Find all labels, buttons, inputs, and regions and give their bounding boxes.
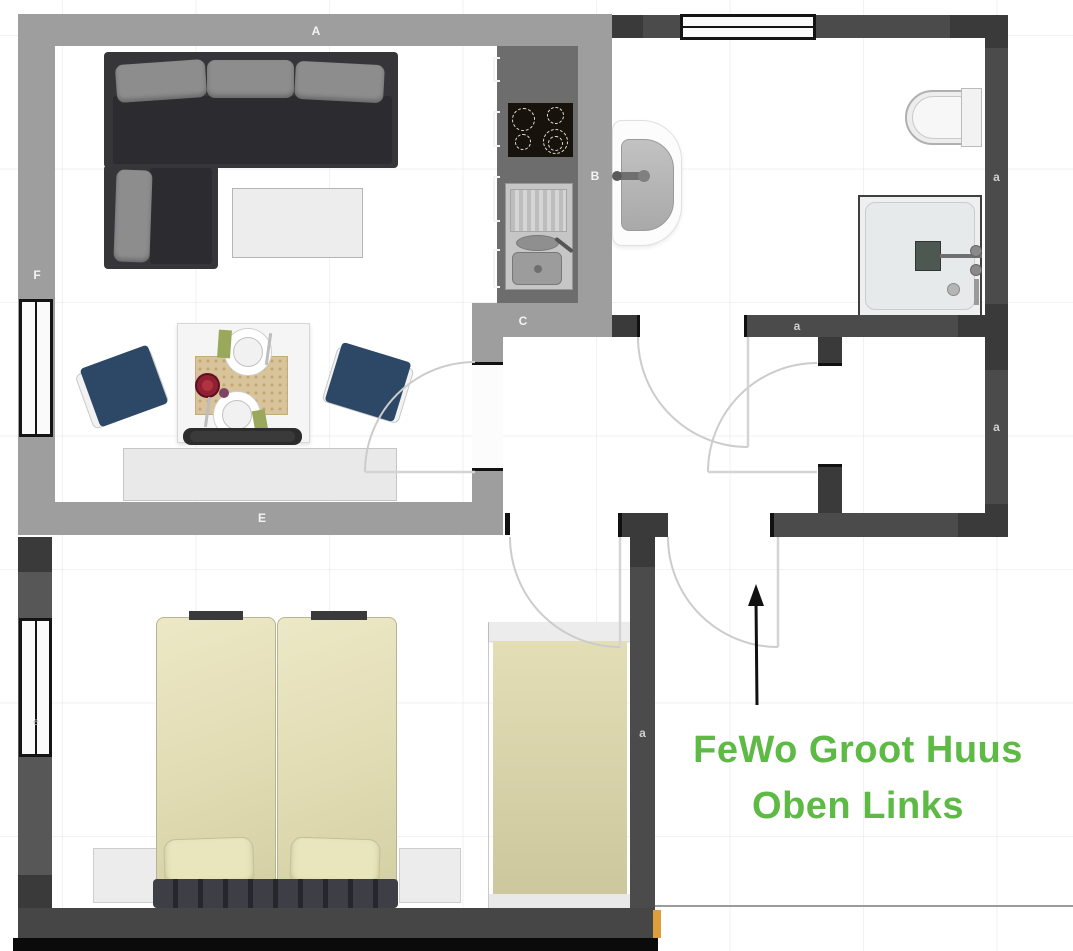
wardrobe-body [493, 641, 627, 894]
wardrobe [488, 622, 630, 908]
wall-label-C: C [513, 313, 533, 329]
shower-head [915, 241, 941, 271]
shower-drain [947, 283, 960, 296]
bedside-bench [93, 848, 157, 903]
door-swing-arc [668, 537, 778, 647]
door-jamb [637, 315, 640, 337]
wall-label-a-room-right: a [985, 419, 1008, 435]
wall-label-F: F [27, 267, 47, 283]
wall-hall-bottom-block [622, 513, 668, 537]
cabinet-handle [493, 57, 500, 82]
wall-block [985, 15, 1008, 48]
sideboard [123, 448, 397, 501]
door-jamb [818, 363, 842, 366]
plate-inner [233, 337, 263, 367]
plate-inner [222, 400, 252, 430]
bedroom-window [19, 618, 52, 757]
cabinet-handle [493, 249, 500, 288]
apartment-annotation-line2: Oben Links [640, 778, 1073, 834]
sink-oval [516, 235, 559, 251]
sofa-seat [113, 96, 392, 164]
annotation-arrow [748, 584, 764, 705]
apartment-annotation-line1: FeWo Groot Huus [640, 722, 1073, 778]
burner [512, 108, 535, 131]
apartment-annotation: FeWo Groot Huus Oben Links [640, 722, 1073, 834]
burner [515, 134, 531, 150]
sink-faucet-head [638, 170, 650, 182]
wall-block [985, 337, 1008, 370]
door-opening [472, 365, 503, 468]
sink-faucet-knob [612, 171, 622, 181]
wall-right [985, 15, 1008, 537]
sofa-cushion [115, 59, 207, 103]
sink-drain [534, 265, 542, 273]
red-pot-lid [202, 380, 213, 391]
bathroom-window [680, 14, 816, 40]
sofa-cushion [207, 60, 294, 98]
wall-block [612, 15, 643, 38]
wall-hall-divider-top [818, 337, 842, 365]
berry-bowl [219, 388, 229, 398]
floor-edge-line [655, 905, 1073, 907]
wall-label-B: B [585, 168, 605, 184]
cabinet-handle [493, 111, 500, 147]
window-label-e: e [28, 717, 44, 728]
living-window [19, 299, 53, 437]
door-jamb [618, 513, 622, 537]
cabinet-handle [493, 176, 500, 222]
wall-block [18, 875, 52, 910]
door-jamb [818, 464, 842, 467]
sofa-cushion [113, 169, 152, 262]
door-jamb [770, 513, 774, 537]
shower-handle [970, 264, 982, 276]
sofa-chaise-seat [150, 168, 212, 264]
wall-bath-bottom-block [612, 315, 640, 337]
burner-inner [548, 136, 563, 151]
drainboard [510, 189, 567, 232]
wall-block [958, 513, 1008, 537]
burner [547, 107, 564, 124]
sofa-cushion [294, 61, 385, 104]
bed-headboard [153, 879, 398, 908]
door-swing-arc [708, 363, 817, 472]
toilet-seat [912, 96, 964, 139]
entry-marker [653, 910, 661, 938]
bed-footboard-bar [189, 611, 243, 620]
window-divider [35, 302, 37, 434]
bed-footboard-bar [311, 611, 367, 620]
bathroom-sink-basin [621, 139, 674, 231]
wall-label-a-bath-right: a [985, 169, 1008, 185]
wall-label-E: E [252, 510, 272, 526]
wardrobe-bottom [489, 894, 631, 908]
wall-kitchen-C [472, 303, 612, 337]
door-swing-arc [638, 337, 748, 447]
wardrobe-top [489, 622, 631, 641]
wall-label-A: A [306, 23, 326, 39]
wall-hall-divider-bottom [818, 467, 842, 513]
toilet-tank [961, 88, 982, 147]
door-jamb [472, 362, 503, 365]
floor-plan: A F E B C a a a a e FeWo Groot Huus Oben… [0, 0, 1073, 951]
serving-tray-inner [190, 431, 295, 442]
wall-block [630, 537, 655, 567]
coffee-table [232, 188, 363, 258]
wall-kitchen-B [578, 46, 612, 337]
wall-block [950, 15, 985, 38]
kitchen-sink-unit [505, 183, 573, 290]
door-jamb [472, 468, 503, 471]
window-divider [683, 26, 813, 28]
wall-bedroom-bottom [18, 908, 655, 938]
shower-rod [974, 279, 979, 305]
wall-label-a-bath-bottom: a [787, 318, 807, 334]
shower-handle [970, 245, 982, 257]
window-divider [35, 621, 37, 754]
cooktop [508, 103, 573, 157]
wall-block [18, 537, 52, 572]
baseline-band [13, 938, 658, 951]
door-jamb [505, 513, 510, 535]
napkin [217, 330, 232, 359]
wall-block [958, 315, 1008, 337]
door-jamb [744, 315, 747, 337]
shower [858, 195, 982, 317]
bedside-bench [399, 848, 461, 903]
